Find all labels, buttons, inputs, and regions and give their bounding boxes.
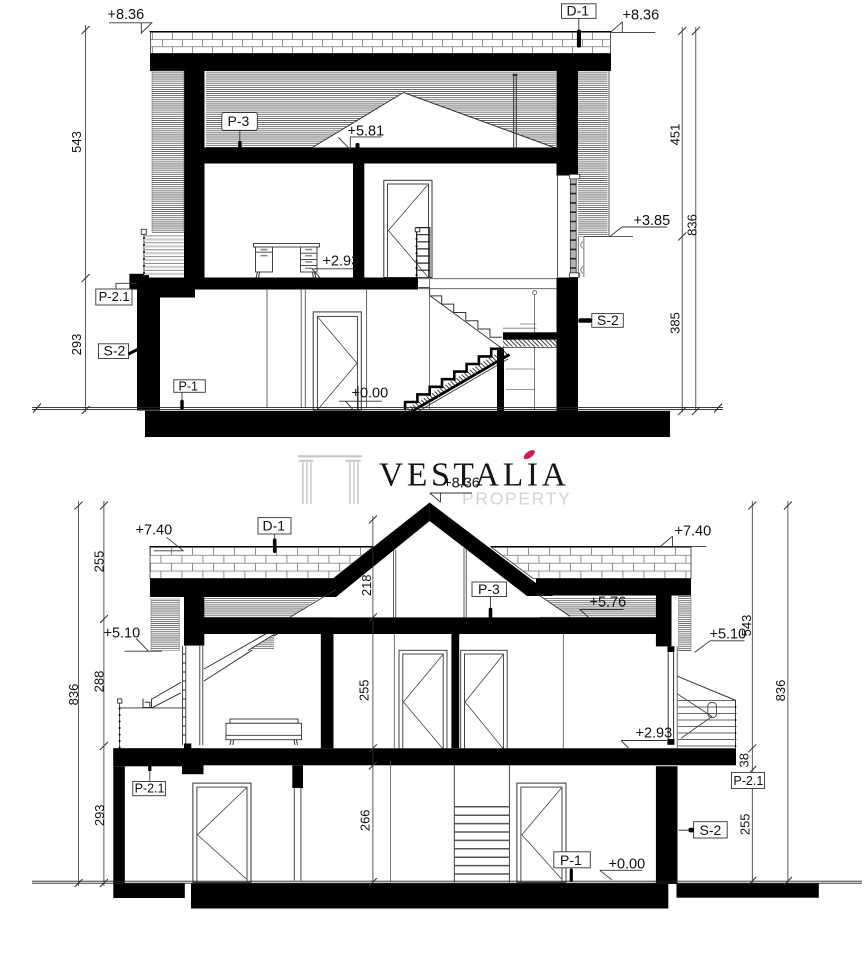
svg-text:S-2: S-2: [104, 343, 126, 359]
svg-text:255: 255: [738, 813, 753, 835]
svg-text:P-2.1: P-2.1: [135, 782, 165, 796]
svg-text:836: 836: [66, 684, 81, 706]
svg-text:+8.36: +8.36: [443, 476, 480, 492]
svg-text:P-3: P-3: [478, 581, 500, 597]
svg-text:+7.40: +7.40: [136, 523, 173, 539]
svg-text:288: 288: [91, 671, 106, 693]
svg-text:P-3: P-3: [228, 113, 250, 129]
svg-text:P-1: P-1: [560, 852, 582, 868]
svg-text:218: 218: [359, 574, 374, 596]
svg-text:+7.40: +7.40: [675, 523, 712, 539]
svg-text:D-1: D-1: [567, 2, 590, 18]
svg-text:293: 293: [92, 804, 107, 826]
svg-text:836: 836: [685, 214, 700, 236]
svg-text:+8.36: +8.36: [108, 7, 145, 23]
svg-text:P-1: P-1: [179, 379, 199, 393]
svg-text:S-2: S-2: [597, 312, 619, 328]
svg-text:+5.10: +5.10: [104, 626, 141, 642]
svg-text:385: 385: [668, 312, 683, 334]
svg-text:38: 38: [737, 753, 752, 767]
svg-text:255: 255: [357, 679, 372, 701]
svg-text:255: 255: [91, 551, 106, 573]
svg-text:836: 836: [773, 680, 788, 702]
svg-text:D-1: D-1: [263, 518, 286, 534]
svg-text:P-2.1: P-2.1: [99, 289, 130, 304]
svg-text:293: 293: [69, 334, 84, 356]
svg-text:+2.93: +2.93: [323, 254, 360, 270]
svg-text:+2.93: +2.93: [636, 726, 673, 742]
svg-text:+5.76: +5.76: [590, 595, 627, 611]
svg-text:+8.36: +8.36: [623, 7, 660, 23]
svg-text:+0.00: +0.00: [352, 385, 389, 401]
svg-text:S-2: S-2: [700, 822, 722, 838]
svg-text:543: 543: [69, 131, 84, 153]
svg-text:451: 451: [668, 124, 683, 146]
svg-text:P-2.1: P-2.1: [733, 774, 763, 788]
svg-text:266: 266: [357, 809, 372, 831]
svg-text:543: 543: [739, 615, 754, 637]
